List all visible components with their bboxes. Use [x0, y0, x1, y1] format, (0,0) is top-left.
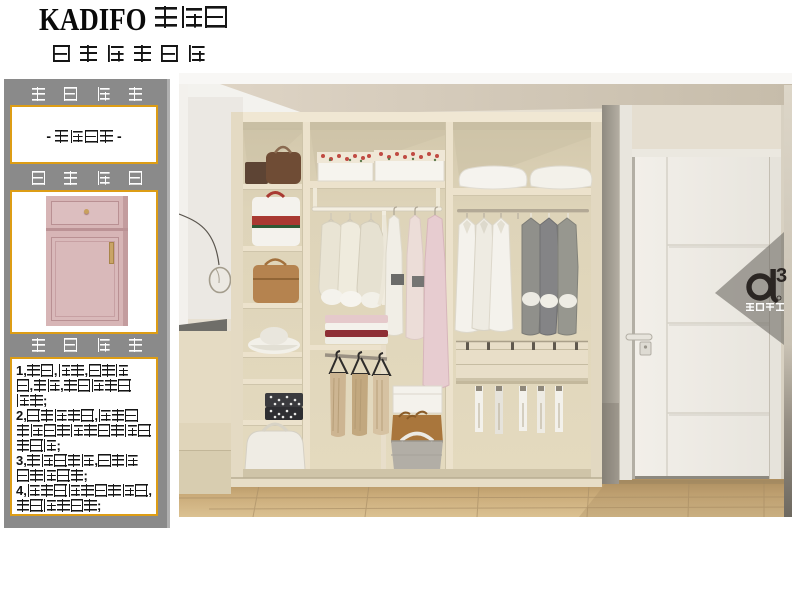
svg-text:3: 3	[776, 265, 787, 287]
